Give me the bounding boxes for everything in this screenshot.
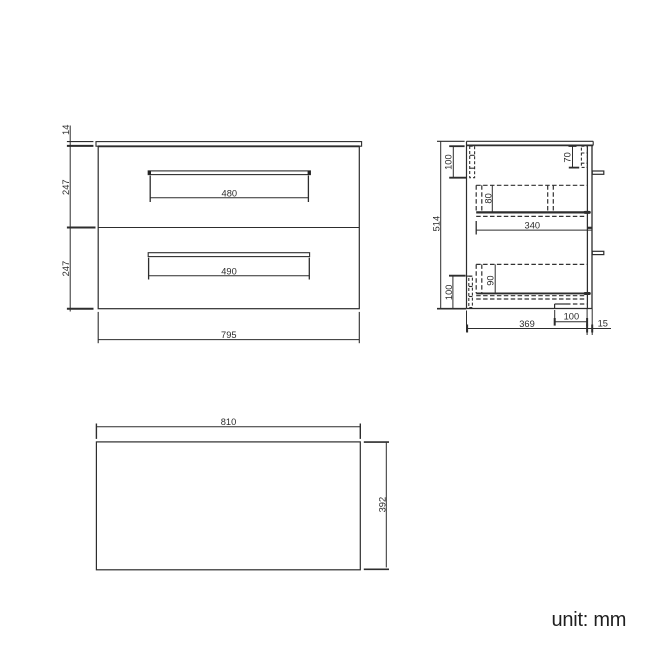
svg-text:14: 14 [61,125,71,135]
svg-text:369: 369 [519,319,535,329]
svg-text:810: 810 [221,417,237,427]
svg-text:247: 247 [61,179,71,195]
svg-text:90: 90 [485,275,495,285]
svg-text:80: 80 [484,193,494,203]
svg-text:15: 15 [598,319,608,329]
svg-text:100: 100 [443,154,453,170]
svg-text:unit: mm: unit: mm [552,609,627,631]
svg-text:100: 100 [444,285,454,301]
svg-text:70: 70 [563,152,573,162]
svg-text:480: 480 [222,189,238,199]
svg-text:795: 795 [221,330,237,340]
svg-text:514: 514 [431,216,441,232]
svg-text:392: 392 [377,497,387,513]
svg-text:100: 100 [564,312,580,322]
svg-text:340: 340 [525,221,541,231]
svg-text:247: 247 [61,261,71,277]
svg-text:490: 490 [221,266,237,276]
